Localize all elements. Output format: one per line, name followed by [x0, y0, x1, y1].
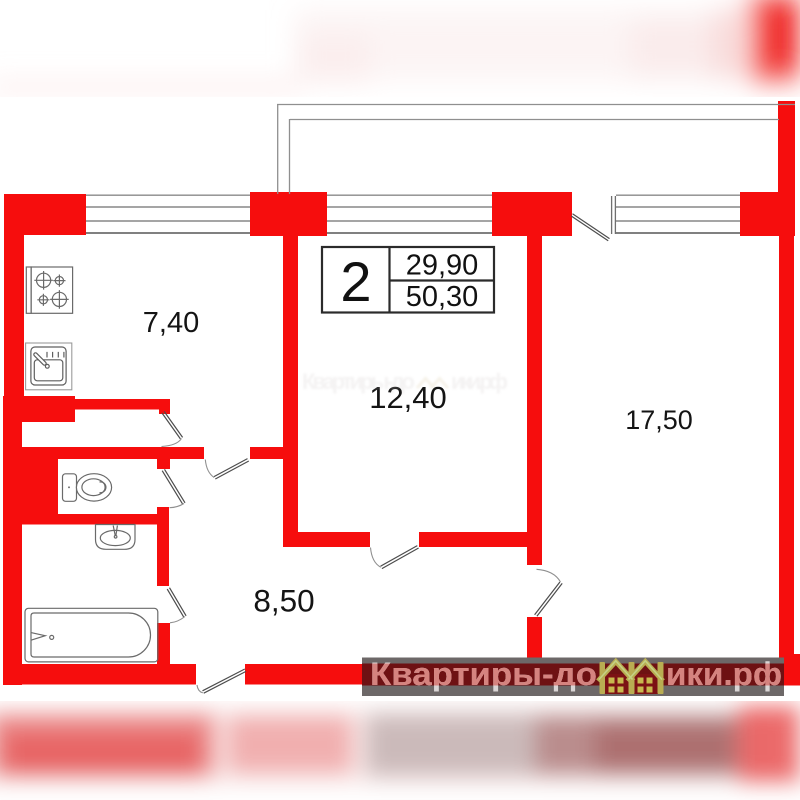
svg-text:ики.рф: ики.рф — [451, 369, 508, 394]
svg-text:50,30: 50,30 — [406, 281, 479, 313]
svg-text:Квартиры-до: Квартиры-до — [302, 369, 415, 394]
svg-text:8,50: 8,50 — [253, 583, 314, 619]
svg-text:29,90: 29,90 — [406, 250, 479, 282]
svg-text:17,50: 17,50 — [625, 405, 693, 435]
svg-text:7,40: 7,40 — [143, 307, 199, 339]
svg-text:2: 2 — [340, 250, 371, 313]
